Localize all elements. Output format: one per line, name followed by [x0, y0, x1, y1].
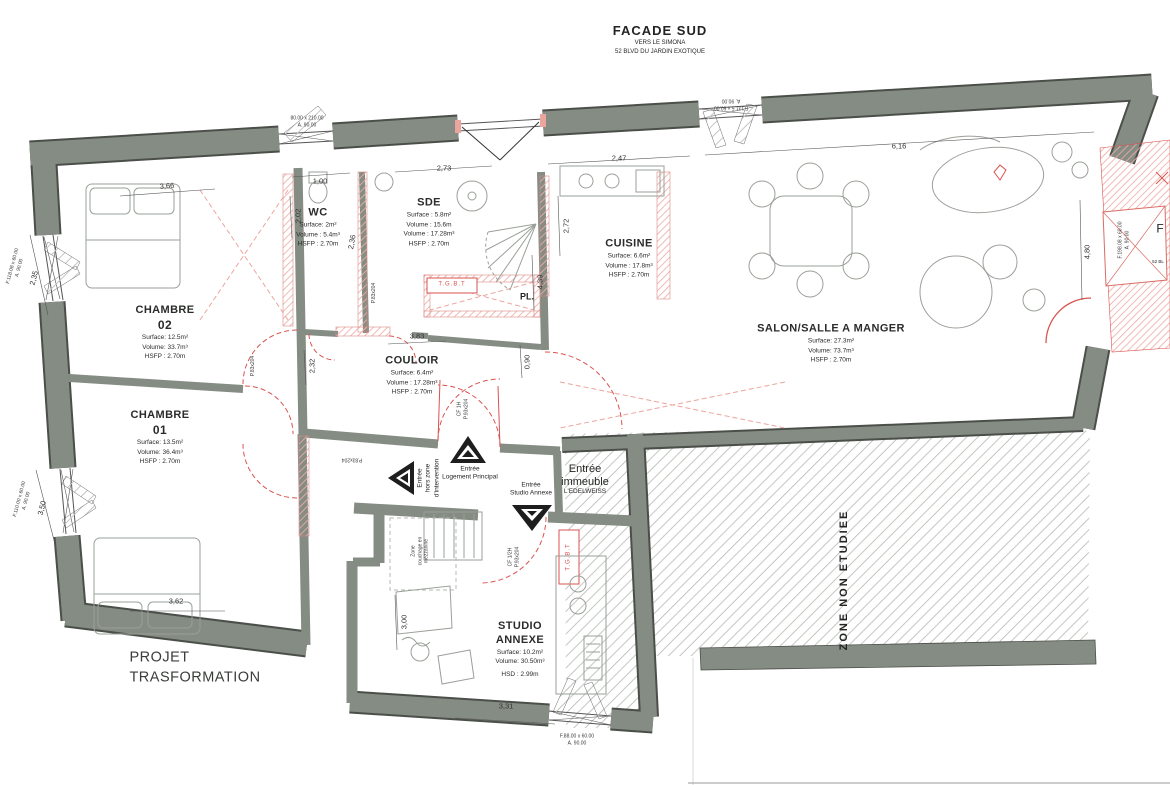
room-number: 01 — [130, 423, 189, 438]
room-height: HSFP : 2.70m — [135, 352, 194, 362]
room-name: SALON/SALLE A MANGER — [757, 323, 905, 337]
dim-2-32: 2,32 — [307, 359, 316, 374]
dim-3-83: 3,83 — [410, 331, 425, 340]
window-size: F.198.08 x 60.00 — [1118, 222, 1125, 259]
room-surface: Surface: 6.6m² — [605, 251, 652, 261]
room-volume2: Volume : 17.28m³ — [404, 230, 455, 240]
dim-2-73: 2,73 — [437, 163, 452, 172]
door-p83-3: P.83x204 — [342, 456, 362, 463]
room-volume: Volume : 5.4m³ — [296, 230, 340, 240]
room-name: CHAMBRE — [135, 304, 194, 318]
entry-studio-annexe: Entrée Studio Annexe — [510, 482, 552, 499]
edge-address-fragment: 52 BL — [1152, 259, 1164, 265]
tgbt-boxes — [427, 278, 579, 584]
room-chambre02: CHAMBRE 02 Surface: 12.5m² Volume: 33.7m… — [135, 304, 194, 362]
room-name: COULOIR — [385, 355, 439, 369]
facade-sub2: 52 BLVD DU JARDIN EXOTIQUE — [613, 48, 708, 57]
room-volume: Volume: 30.50m³ — [495, 657, 544, 667]
entry-line: Entrée — [442, 466, 498, 474]
room-salon: SALON/SALLE A MANGER Surface: 27.3m² Vol… — [757, 323, 905, 366]
door-size: P.93x204 — [514, 547, 521, 567]
room-name: SDE — [404, 197, 455, 211]
dim-3-00: 3,00 — [399, 615, 408, 630]
dim-2-47: 2,47 — [612, 153, 627, 162]
room-couloir: COULOIR Surface: 6.4m² Volume : 17.28m³ … — [385, 355, 439, 398]
window-label-right: F.198.08 x 60.00 A. 90.00 — [1118, 222, 1131, 259]
room-volume: Volume: 33.7m³ — [135, 343, 194, 353]
window-size: F.131.5 x 60.00 — [714, 104, 748, 111]
room-wc: WC Surface: 2m² Volume : 5.4m³ HSFP : 2.… — [296, 207, 340, 250]
dim-3-31: 3,31 — [499, 701, 514, 710]
dim-4-39: 4,39 — [535, 275, 544, 290]
window-sill: A. 90.00 — [290, 122, 323, 129]
dim-0-90: 0,90 — [522, 355, 531, 370]
mezzanine-note: Zone couchage en mezzanine — [410, 537, 430, 566]
room-height: HSFP : 2.70m — [757, 356, 905, 366]
room-height: HSFP : 2.70m — [130, 457, 189, 467]
door-rating: CF 1H — [457, 399, 464, 419]
room-height: HSFP : 2.70m — [605, 271, 652, 281]
entry-line: Studio Annexe — [510, 490, 552, 498]
project-line2: TRASFORMATION — [129, 668, 260, 688]
room-volume: Volume : 15.6m — [404, 220, 455, 230]
dim-2-02: 2,02 — [293, 209, 302, 224]
project-title: PROJET TRASFORMATION — [129, 648, 260, 687]
room-surface: Surface: 6.4m² — [385, 368, 439, 378]
dim-3-66: 3,66 — [159, 181, 174, 191]
door-p83-1: P.83x204 — [250, 356, 257, 376]
entry-line: Entrée — [416, 459, 424, 497]
room-surface: Surface : 5.8m² — [404, 210, 455, 220]
dim-4-80: 4,80 — [1082, 245, 1091, 260]
room-number: 02 — [135, 318, 194, 333]
door-cf1h: CF 1H P.93x204 — [457, 399, 470, 419]
facade-title: FACADE SUD — [613, 23, 708, 39]
window-size: 80.00 x 210.00 — [290, 116, 323, 123]
room-name2: ANNEXE — [495, 634, 544, 648]
facade-door — [455, 114, 546, 160]
entry-line: L'EDELWEISS — [561, 488, 609, 496]
tgbt-label-2: T.G.B.T — [565, 543, 573, 570]
room-name: WC — [296, 207, 340, 221]
entry-logement-principal: Entrée Logement Principal — [442, 466, 498, 483]
room-name: CUISINE — [605, 238, 652, 252]
red-sketch-mark — [994, 165, 1006, 180]
room-name: STUDIO — [495, 620, 544, 634]
room-surface: Surface: 2m² — [296, 220, 340, 230]
mezzanine-line: mezzanine — [423, 537, 430, 566]
placard-label: PL. — [520, 291, 534, 302]
entry-line: Entrée — [510, 482, 552, 490]
room-height: HSD : 2.99m — [495, 670, 544, 680]
room-height: HSFP : 2.70m — [296, 240, 340, 250]
dim-1-00: 1,00 — [313, 176, 328, 185]
entry-line: Logement Principal — [442, 474, 498, 482]
room-name: CHAMBRE — [130, 409, 189, 423]
dim-3-62: 3,62 — [169, 596, 184, 605]
door-rating: CF 1/2H — [508, 547, 515, 567]
floor-plan-page: FACADE SUD VERS LE SIMONA 52 BLVD DU JAR… — [0, 0, 1170, 785]
door-size: P.93x204 — [463, 399, 470, 419]
door-cf12h: CF 1/2H P.93x204 — [508, 547, 521, 567]
entry-line: immeuble — [561, 476, 609, 489]
window-label-top-left: 80.00 x 210.00 A. 90.00 — [290, 116, 323, 129]
room-sde: SDE Surface : 5.8m² Volume : 15.6m Volum… — [404, 197, 455, 250]
room-height: HSFP : 2.70m — [385, 388, 439, 398]
zone-non-etudiee-label: ZONE NON ETUDIEE — [838, 510, 852, 651]
window-size: F.88.00 x 60.00 — [560, 734, 594, 741]
entry-line: Entrée — [561, 463, 609, 476]
entry-immeuble: Entrée immeuble L'EDELWEISS — [561, 463, 609, 497]
room-surface: Surface: 27.3m² — [757, 336, 905, 346]
facade-title-block: FACADE SUD VERS LE SIMONA 52 BLVD DU JAR… — [613, 23, 708, 57]
right-facade-opening — [1100, 140, 1170, 352]
dim-2-72: 2,72 — [561, 219, 570, 234]
tgbt-label-1: T.G.B.T — [438, 281, 465, 289]
page-edges — [688, 658, 1170, 785]
room-surface: Surface: 10.2m² — [495, 648, 544, 658]
window-sill: A. 90.00 — [1124, 222, 1131, 259]
room-chambre01: CHAMBRE 01 Surface: 13.5m² Volume: 36.4m… — [130, 409, 189, 467]
facade-sub1: VERS LE SIMONA — [613, 39, 708, 48]
room-volume: Volume : 17.28m³ — [385, 378, 439, 388]
entry-line: d'intervention — [433, 459, 441, 497]
window-label-bottom: F.88.00 x 60.00 A. 90.00 — [560, 734, 594, 747]
project-line1: PROJET — [129, 648, 260, 668]
room-surface: Surface: 12.5m² — [135, 333, 194, 343]
entry-hors-zone: Entrée hors zone d'intervention — [416, 459, 441, 497]
room-cuisine: CUISINE Surface: 6.6m² Volume : 17.8m³ H… — [605, 238, 652, 281]
edge-facade-letter: F — [1156, 222, 1163, 237]
window-sill: A. 90.00 — [560, 740, 594, 747]
window-label-top-right: F.131.5 x 60.00 A. 90.00 — [714, 98, 748, 111]
room-surface: Surface: 13.5m² — [130, 438, 189, 448]
room-volume: Volume : 17.8m³ — [605, 261, 652, 271]
room-volume: Volume: 36.4m³ — [130, 448, 189, 458]
entry-line: hors zone — [425, 459, 433, 497]
dim-6-16: 6,16 — [892, 141, 907, 150]
room-studio: STUDIO ANNEXE Surface: 10.2m² Volume: 30… — [495, 620, 544, 680]
door-p83-2: P.83x204 — [371, 283, 378, 303]
room-volume: Volume: 73.7m³ — [757, 346, 905, 356]
room-height: HSFP : 2.70m — [404, 240, 455, 250]
